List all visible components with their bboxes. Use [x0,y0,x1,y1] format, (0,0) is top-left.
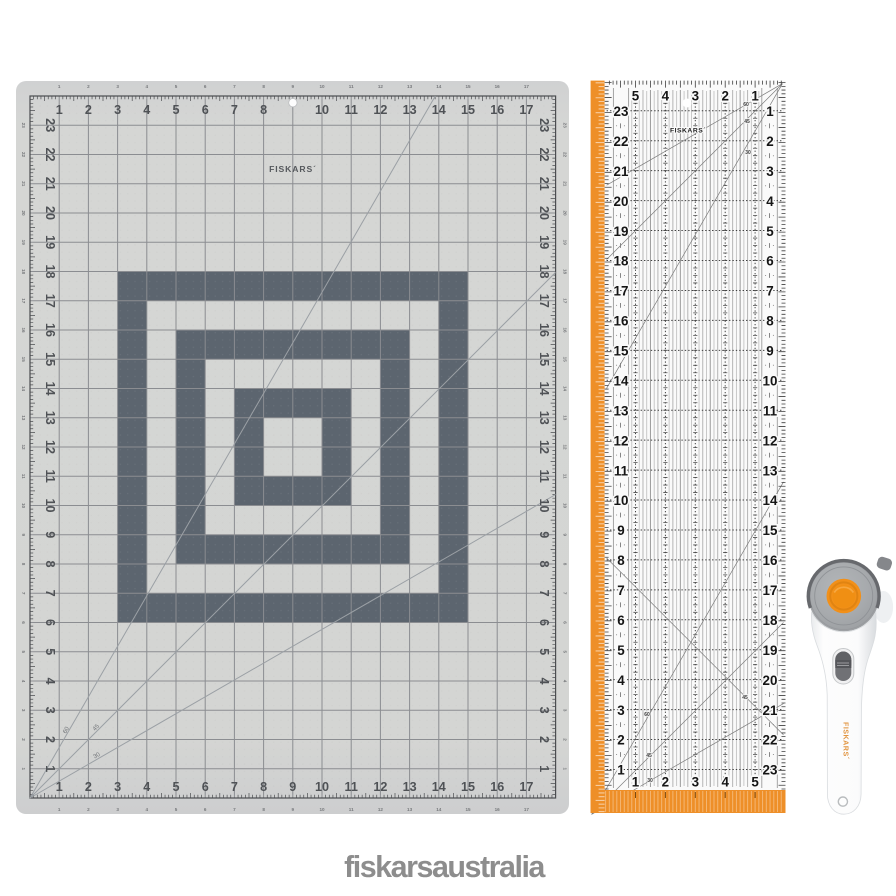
svg-text:5: 5 [175,807,178,812]
svg-text:9: 9 [292,807,295,812]
svg-text:11: 11 [349,807,354,812]
svg-text:23: 23 [563,123,568,129]
svg-text:60: 60 [644,712,650,718]
svg-text:3: 3 [114,780,121,794]
svg-text:5: 5 [632,89,640,104]
svg-text:21: 21 [537,177,551,191]
svg-text:45: 45 [744,119,750,125]
svg-text:2: 2 [87,807,90,812]
svg-text:15: 15 [461,103,475,117]
svg-text:15: 15 [763,523,778,538]
svg-text:3: 3 [563,709,568,712]
svg-text:3: 3 [114,103,121,117]
svg-text:14: 14 [432,780,446,794]
svg-text:14: 14 [537,381,551,395]
svg-text:8: 8 [21,563,26,566]
svg-text:19: 19 [537,235,551,249]
svg-text:3: 3 [692,775,699,790]
svg-text:13: 13 [537,411,551,425]
svg-text:4: 4 [721,775,729,790]
svg-text:1: 1 [56,103,63,117]
svg-text:2: 2 [85,103,92,117]
svg-text:6: 6 [563,621,568,624]
svg-text:16: 16 [43,323,57,337]
svg-text:9: 9 [292,84,295,89]
svg-text:13: 13 [403,103,417,117]
svg-text:2: 2 [85,780,92,794]
svg-text:15: 15 [614,344,629,359]
svg-text:12: 12 [43,440,57,454]
svg-text:23: 23 [43,118,57,132]
svg-text:6: 6 [204,807,207,812]
svg-text:23: 23 [763,763,778,778]
svg-text:10: 10 [614,493,629,508]
svg-text:7: 7 [537,590,551,597]
svg-text:17: 17 [537,294,551,308]
svg-text:14: 14 [763,493,778,508]
svg-text:15: 15 [461,780,475,794]
svg-text:19: 19 [614,224,629,239]
svg-text:11: 11 [563,474,568,479]
svg-text:10: 10 [21,503,26,509]
svg-text:18: 18 [614,254,629,269]
svg-text:18: 18 [563,269,568,275]
svg-text:16: 16 [537,323,551,337]
svg-text:10: 10 [319,807,325,812]
svg-text:5: 5 [766,224,774,239]
svg-text:13: 13 [403,780,417,794]
svg-text:45: 45 [646,753,652,759]
svg-text:1: 1 [617,763,625,778]
svg-text:22: 22 [537,147,551,161]
svg-text:4: 4 [146,84,149,89]
svg-text:21: 21 [614,164,629,179]
svg-text:7: 7 [766,284,773,299]
svg-text:23: 23 [537,118,551,132]
svg-text:16: 16 [490,103,504,117]
svg-text:45: 45 [742,695,748,701]
svg-text:22: 22 [763,733,778,748]
svg-text:4: 4 [143,103,150,117]
svg-text:1: 1 [43,765,57,772]
svg-text:10: 10 [563,503,568,509]
svg-text:2: 2 [563,738,568,741]
svg-text:12: 12 [373,103,387,117]
svg-text:21: 21 [43,177,57,191]
svg-text:16: 16 [495,84,501,89]
svg-text:17: 17 [563,298,568,304]
svg-text:2: 2 [537,736,551,743]
svg-text:7: 7 [563,592,568,595]
svg-text:30: 30 [745,150,751,156]
svg-text:10: 10 [537,498,551,512]
svg-text:22: 22 [21,152,26,158]
svg-text:9: 9 [21,534,26,537]
svg-text:5: 5 [563,651,568,654]
svg-text:17: 17 [614,284,629,299]
svg-text:6: 6 [202,103,209,117]
svg-text:16: 16 [563,327,568,333]
svg-text:8: 8 [563,563,568,566]
svg-text:15: 15 [537,352,551,366]
svg-text:3: 3 [43,707,57,714]
svg-text:2: 2 [21,738,26,741]
svg-text:12: 12 [378,84,384,89]
svg-text:3: 3 [116,84,119,89]
svg-text:19: 19 [43,235,57,249]
svg-text:13: 13 [614,403,629,418]
svg-text:12: 12 [537,440,551,454]
svg-text:7: 7 [233,807,236,812]
svg-text:20: 20 [563,210,568,216]
svg-text:16: 16 [490,780,504,794]
svg-text:1: 1 [632,775,640,790]
svg-text:60: 60 [743,102,749,108]
svg-text:4: 4 [21,680,26,683]
svg-text:7: 7 [233,84,236,89]
svg-text:21: 21 [563,181,568,187]
svg-text:2: 2 [721,89,728,104]
svg-text:5: 5 [172,780,179,794]
svg-text:6: 6 [537,619,551,626]
svg-text:7: 7 [231,780,238,794]
svg-text:4: 4 [537,677,551,684]
svg-text:12: 12 [21,444,26,450]
svg-text:11: 11 [345,780,358,794]
svg-text:5: 5 [175,84,178,89]
svg-text:20: 20 [43,206,57,220]
svg-text:11: 11 [537,470,551,483]
svg-text:2: 2 [662,775,669,790]
svg-text:8: 8 [766,314,774,329]
svg-text:6: 6 [204,84,207,89]
svg-text:fiskarsaustralia: fiskarsaustralia [344,850,546,884]
svg-text:2: 2 [43,736,57,743]
svg-text:7: 7 [617,583,624,598]
svg-text:14: 14 [21,386,26,392]
svg-text:6: 6 [21,621,26,624]
svg-text:8: 8 [617,553,625,568]
svg-text:23: 23 [614,104,629,119]
svg-text:16: 16 [763,553,778,568]
svg-text:9: 9 [766,344,773,359]
svg-text:8: 8 [262,807,265,812]
svg-text:16: 16 [21,327,26,333]
svg-text:14: 14 [432,103,446,117]
svg-text:22: 22 [43,147,57,161]
svg-text:1: 1 [563,768,568,771]
svg-text:21: 21 [763,703,778,718]
svg-text:20: 20 [614,194,629,209]
svg-text:5: 5 [21,651,26,654]
svg-text:9: 9 [537,531,551,538]
svg-text:20: 20 [763,673,778,688]
svg-text:1: 1 [751,89,759,104]
svg-text:6: 6 [202,780,209,794]
svg-text:17: 17 [519,780,533,794]
svg-text:13: 13 [43,411,57,425]
svg-text:5: 5 [43,648,57,655]
svg-text:4: 4 [563,680,568,683]
svg-text:11: 11 [43,470,57,483]
svg-text:11: 11 [763,403,778,418]
svg-text:1: 1 [766,104,774,119]
svg-text:10: 10 [315,780,329,794]
svg-text:15: 15 [21,357,26,363]
svg-text:2: 2 [617,733,624,748]
svg-text:4: 4 [146,807,149,812]
svg-text:1: 1 [58,807,61,812]
svg-text:17: 17 [763,583,778,598]
svg-text:19: 19 [21,240,26,246]
svg-text:4: 4 [617,673,625,688]
svg-text:12: 12 [563,444,568,450]
svg-text:4: 4 [766,194,774,209]
svg-text:FISKARS´: FISKARS´ [670,128,706,135]
svg-text:2: 2 [766,134,773,149]
svg-text:1: 1 [58,84,61,89]
svg-text:15: 15 [563,357,568,363]
svg-text:5: 5 [751,775,759,790]
svg-text:15: 15 [465,84,471,89]
svg-text:4: 4 [43,677,57,684]
svg-text:8: 8 [43,560,57,567]
svg-text:18: 18 [21,269,26,275]
svg-text:16: 16 [495,807,501,812]
svg-text:23: 23 [21,123,26,129]
svg-text:14: 14 [614,374,629,389]
svg-text:4: 4 [143,780,150,794]
svg-text:3: 3 [692,89,699,104]
svg-text:3: 3 [766,164,773,179]
svg-text:12: 12 [763,433,778,448]
svg-text:5: 5 [617,643,625,658]
svg-text:18: 18 [43,264,57,278]
svg-text:3: 3 [537,707,551,714]
svg-text:3: 3 [617,703,624,718]
svg-text:30: 30 [647,778,653,784]
svg-text:14: 14 [436,807,442,812]
svg-text:21: 21 [21,181,26,187]
svg-text:11: 11 [614,463,629,478]
svg-text:7: 7 [43,590,57,597]
svg-text:5: 5 [537,648,551,655]
svg-text:14: 14 [43,381,57,395]
svg-text:9: 9 [289,780,296,794]
svg-text:17: 17 [43,294,57,308]
svg-text:17: 17 [519,103,533,117]
svg-text:10: 10 [319,84,325,89]
svg-text:10: 10 [43,498,57,512]
svg-text:14: 14 [436,84,442,89]
svg-text:13: 13 [407,807,413,812]
svg-text:17: 17 [524,84,530,89]
svg-text:FISKARS´: FISKARS´ [842,722,851,760]
svg-text:15: 15 [465,807,471,812]
svg-text:11: 11 [345,103,358,117]
svg-text:3: 3 [21,709,26,712]
svg-text:6: 6 [766,254,773,269]
svg-text:19: 19 [563,240,568,246]
svg-text:8: 8 [537,560,551,567]
svg-text:12: 12 [614,433,629,448]
svg-text:11: 11 [349,84,354,89]
svg-text:13: 13 [407,84,413,89]
svg-text:19: 19 [763,643,778,658]
svg-text:9: 9 [43,531,57,538]
svg-text:18: 18 [763,613,778,628]
svg-text:16: 16 [614,314,629,329]
svg-text:3: 3 [116,807,119,812]
svg-text:8: 8 [260,780,267,794]
svg-text:18: 18 [537,264,551,278]
svg-text:15: 15 [43,352,57,366]
svg-text:13: 13 [21,415,26,421]
svg-text:20: 20 [21,210,26,216]
svg-text:12: 12 [378,807,384,812]
svg-text:5: 5 [172,103,179,117]
svg-text:7: 7 [21,592,26,595]
svg-text:4: 4 [662,89,670,104]
svg-text:22: 22 [563,152,568,158]
svg-text:2: 2 [87,84,90,89]
svg-text:7: 7 [231,103,238,117]
svg-text:9: 9 [563,534,568,537]
svg-text:6: 6 [43,619,57,626]
svg-text:10: 10 [763,374,778,389]
svg-text:1: 1 [56,780,63,794]
svg-text:11: 11 [21,474,26,479]
svg-text:20: 20 [537,206,551,220]
svg-text:FISKARS´: FISKARS´ [269,164,317,174]
svg-text:14: 14 [563,386,568,392]
svg-text:10: 10 [315,103,329,117]
svg-text:8: 8 [262,84,265,89]
svg-text:6: 6 [617,613,624,628]
svg-text:8: 8 [260,103,267,117]
svg-text:17: 17 [524,807,530,812]
svg-text:9: 9 [617,523,624,538]
svg-text:13: 13 [763,463,778,478]
svg-text:22: 22 [614,134,629,149]
svg-text:1: 1 [537,765,551,772]
svg-text:13: 13 [563,415,568,421]
svg-text:12: 12 [373,780,387,794]
svg-text:1: 1 [21,768,26,771]
svg-text:17: 17 [21,298,26,304]
